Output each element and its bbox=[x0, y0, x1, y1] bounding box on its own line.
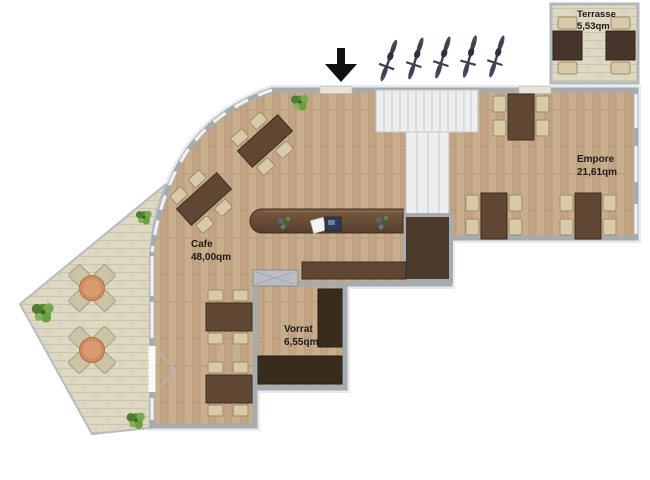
cafe-name: Cafe bbox=[191, 239, 231, 252]
bicycle-icon bbox=[456, 33, 484, 80]
empore-label: Empore 21,61qm bbox=[577, 154, 617, 179]
entrance-door bbox=[320, 87, 352, 94]
vorrat-name: Vorrat bbox=[284, 324, 318, 337]
bicycle-icon bbox=[374, 37, 404, 84]
empore-name: Empore bbox=[577, 154, 617, 167]
bar-appliance bbox=[253, 270, 298, 286]
floorplan-canvas bbox=[0, 0, 650, 480]
under-stair-closet bbox=[404, 215, 451, 281]
back-counter bbox=[302, 262, 406, 279]
empore-area: 21,61qm bbox=[577, 167, 617, 180]
cafe-area: 48,00qm bbox=[191, 252, 231, 265]
bar-register bbox=[325, 217, 341, 231]
terrasse-name: Terrasse bbox=[577, 9, 616, 21]
cafe-label: Cafe 48,00qm bbox=[191, 239, 231, 264]
bicycle-icon bbox=[401, 35, 430, 82]
bar-menu-card bbox=[310, 217, 326, 233]
bicycle-icon bbox=[428, 34, 457, 81]
vorrat-area: 6,55qm bbox=[284, 337, 318, 350]
terrasse-door bbox=[519, 87, 551, 94]
terrasse-label: Terrasse 5,53qm bbox=[577, 9, 616, 33]
vorrat-label: Vorrat 6,55qm bbox=[284, 324, 318, 349]
entrance-arrow-icon bbox=[325, 48, 357, 82]
bicycle-icon bbox=[482, 33, 511, 80]
floor-plan: Terrasse 5,53qm Empore 21,61qm Cafe 48,0… bbox=[0, 0, 650, 480]
terrasse-area: 5,53qm bbox=[577, 21, 616, 33]
